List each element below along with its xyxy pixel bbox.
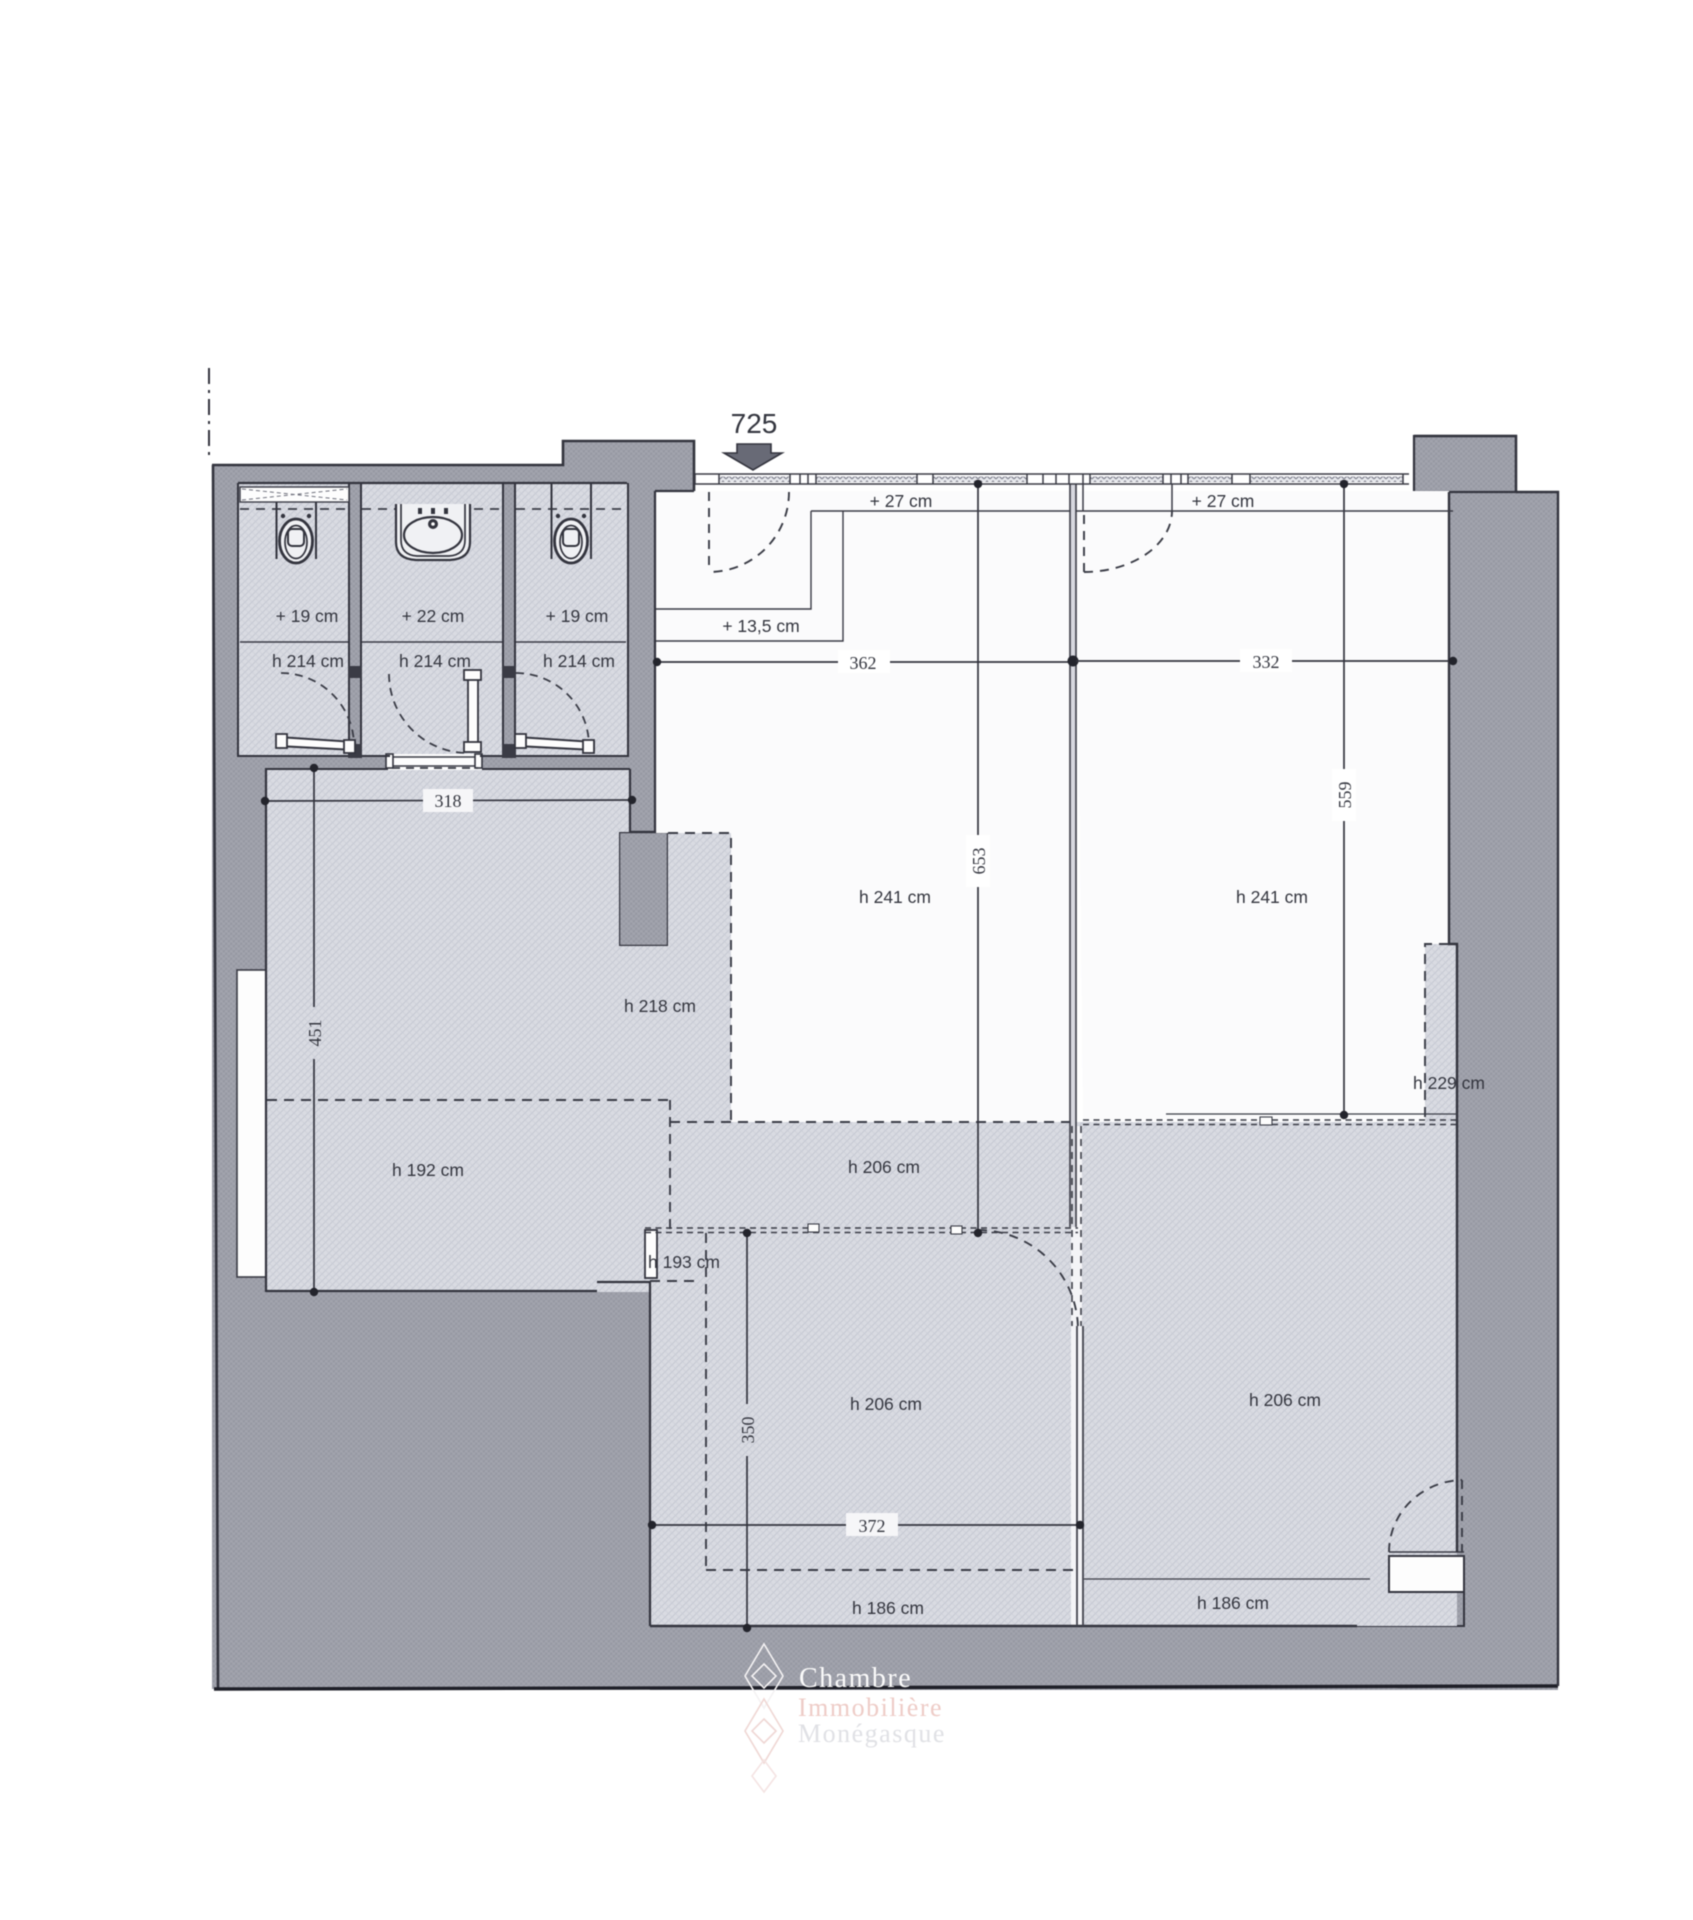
svg-text:h 229 cm: h 229 cm	[1413, 1073, 1485, 1093]
svg-text:h 186 cm: h 186 cm	[1197, 1593, 1269, 1613]
svg-text:350: 350	[738, 1417, 758, 1444]
svg-text:+ 19 cm: + 19 cm	[546, 606, 609, 626]
svg-text:372: 372	[859, 1516, 886, 1536]
svg-text:332: 332	[1253, 652, 1280, 672]
svg-text:362: 362	[850, 653, 877, 673]
svg-text:h 214 cm: h 214 cm	[272, 651, 344, 671]
svg-text:+ 22 cm: + 22 cm	[402, 606, 465, 626]
svg-text:h 214 cm: h 214 cm	[543, 651, 615, 671]
svg-text:h 192 cm: h 192 cm	[392, 1160, 464, 1180]
svg-text:+ 27 cm: + 27 cm	[1192, 491, 1255, 511]
svg-text:653: 653	[969, 848, 989, 875]
svg-text:Monégasque: Monégasque	[798, 1719, 946, 1748]
svg-text:h 241 cm: h 241 cm	[859, 887, 931, 907]
svg-text:Immobilière: Immobilière	[798, 1693, 943, 1722]
svg-text:+ 13,5 cm: + 13,5 cm	[722, 616, 799, 636]
svg-text:+ 27 cm: + 27 cm	[870, 491, 933, 511]
svg-text:h 193 cm: h 193 cm	[648, 1252, 720, 1272]
svg-text:h 206 cm: h 206 cm	[848, 1157, 920, 1177]
svg-text:h 241 cm: h 241 cm	[1236, 887, 1308, 907]
svg-text:451: 451	[305, 1020, 325, 1047]
svg-text:Chambre: Chambre	[799, 1663, 912, 1694]
svg-text:h 218 cm: h 218 cm	[624, 996, 696, 1016]
svg-text:+ 19 cm: + 19 cm	[276, 606, 339, 626]
svg-text:h 206 cm: h 206 cm	[1249, 1390, 1321, 1410]
svg-text:725: 725	[731, 408, 778, 439]
svg-text:318: 318	[435, 791, 462, 811]
svg-text:h 214 cm: h 214 cm	[399, 651, 471, 671]
svg-text:h 186 cm: h 186 cm	[852, 1598, 924, 1618]
svg-text:559: 559	[1335, 782, 1355, 809]
svg-text:h 206 cm: h 206 cm	[850, 1394, 922, 1414]
